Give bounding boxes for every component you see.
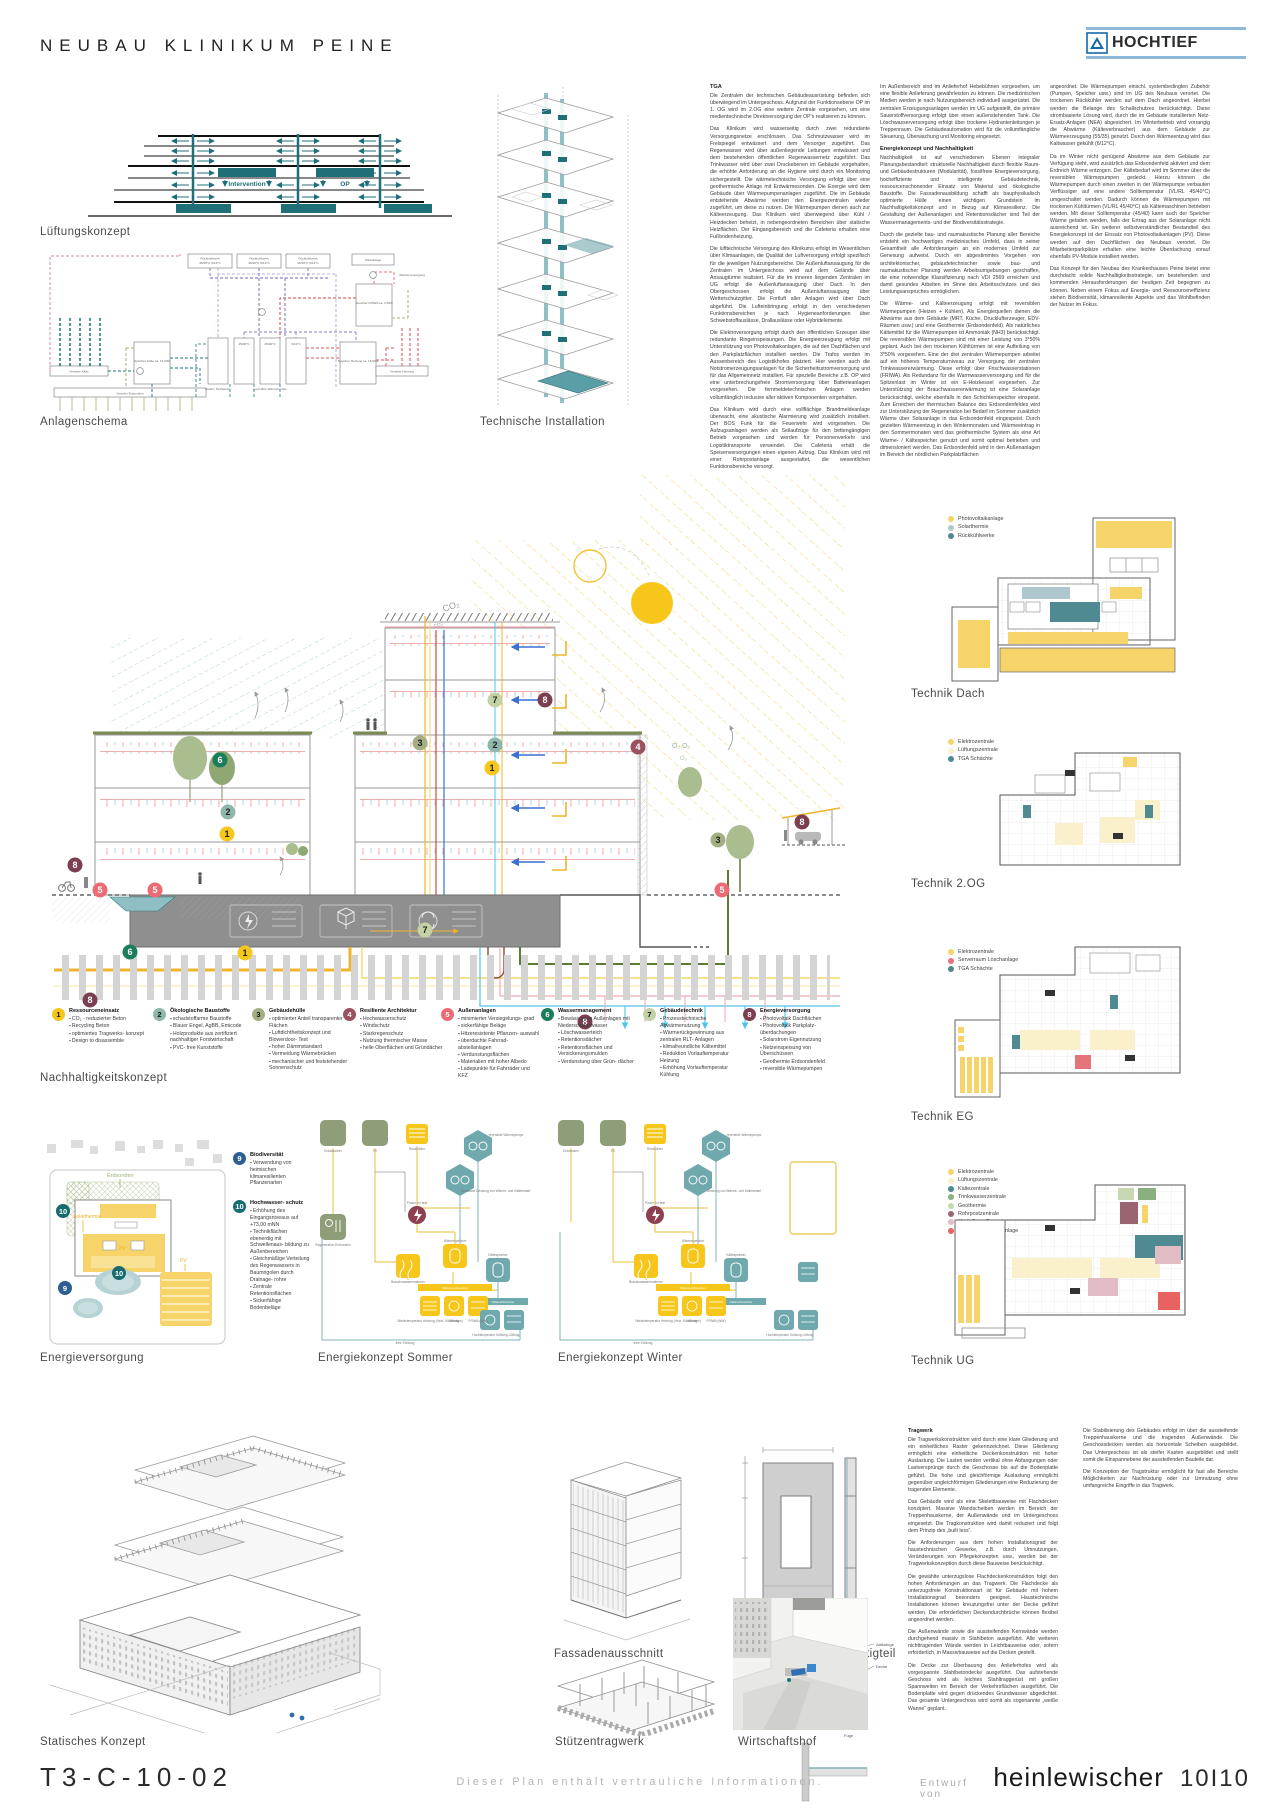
speicher-heizung-label: Speicher Heizung ca. 15.000l [338, 359, 379, 363]
svg-text:Brauchwassererwärmer: Brauchwassererwärmer [391, 1280, 426, 1284]
stuetzen-axon [540, 1658, 720, 1736]
cold-storage-icon [486, 1258, 510, 1282]
plant-schematic-diagram: Rückkühlwerk 45/40°C 6/12°C Rückkühlwerk… [40, 248, 432, 414]
svg-text:10: 10 [115, 1269, 123, 1278]
svg-text:Rückkühler: Rückkühler [647, 1147, 664, 1151]
friwa-label: Speicher FRIWA ca. 2.500l [355, 301, 392, 305]
svg-text:Lüftung: Lüftung [449, 1319, 460, 1323]
technik-2og-plan [995, 745, 1185, 871]
tragwerk-heading: Tragwerk [908, 1428, 1058, 1436]
svg-text:7: 7 [422, 925, 427, 935]
svg-text:Lüftung: Lüftung [687, 1319, 698, 1323]
svg-text:O₂: O₂ [680, 756, 688, 762]
plan-number: T3-C-10-02 [40, 1762, 233, 1793]
rooftop-pv-icon [385, 613, 553, 621]
heizkessel-label: Elektro Heizkessel [205, 387, 231, 391]
caption-energiekonzept-sommer: Energiekonzept Sommer [318, 1352, 453, 1364]
rueckkuehlwerk-label: Rückkühlwerk [200, 257, 220, 261]
svg-text:3: 3 [715, 835, 720, 845]
svg-text:Rückkühler: Rückkühler [409, 1147, 426, 1151]
ventilation-concept-diagram: Intervention OP [88, 128, 452, 224]
svg-text:10: 10 [59, 1207, 67, 1216]
text-column-energiekonzept: Im Außenbereich sind im Anlieferhof Hebe… [880, 84, 1040, 480]
svg-text:4: 4 [635, 742, 640, 752]
svg-text:3: 3 [417, 738, 422, 748]
hochtief-logo: HOCHTIEF [1086, 27, 1246, 59]
credit-prefix: Entwurf von [920, 1778, 983, 1800]
caption-stuetzentragwerk: Stützentragwerk [555, 1736, 644, 1748]
verteiler-erdsonden-label: Verteiler Erdsonden [116, 392, 143, 396]
svg-text:8: 8 [87, 995, 92, 1005]
caption-lueftungskonzept: Lüftungskonzept [40, 226, 130, 238]
svg-text:Brauchwassererwärmer: Brauchwassererwärmer [629, 1280, 664, 1284]
statik-exploded-axon [40, 1415, 400, 1733]
sun-icon [631, 582, 673, 624]
verteiler-kaelte-label: Verteiler Kälte [69, 370, 89, 374]
svg-text:5: 5 [97, 885, 102, 895]
speicher-kaelte-label: Speicher Kälte ca. 15.000l [134, 359, 170, 363]
svg-text:Wärmeverbraucher: Wärmeverbraucher [680, 1286, 706, 1290]
svg-text:8: 8 [542, 695, 547, 705]
caption-technik-ug: Technik UG [911, 1355, 974, 1367]
svg-text:Erdsonden: Erdsonden [563, 1149, 579, 1153]
svg-text:Regeneration Erdsonden: Regeneration Erdsonden [315, 1243, 351, 1247]
technik-eg-plan [950, 935, 1185, 1107]
ev-charger-icon [84, 877, 88, 888]
regeneration-icon [320, 1214, 346, 1240]
svg-text:2: 2 [492, 740, 497, 750]
svg-text:Wärmespeicher: Wärmespeicher [682, 1239, 705, 1243]
hochtief-logo-text: HOCHTIEF [1112, 34, 1198, 52]
svg-text:6: 6 [127, 947, 132, 957]
solaranlage-label: Solaranlage [365, 258, 382, 262]
caption-anlagenschema: Anlagenschema [40, 416, 128, 428]
pv-field [160, 1272, 212, 1326]
svg-text:Wärmespeicher: Wärmespeicher [444, 1239, 467, 1243]
energy-supply-site-plan: Erdsonden Solarthermie PV PV [45, 1138, 235, 1350]
caption-energiekonzept-winter: Energiekonzept Winter [558, 1352, 683, 1364]
svg-text:45/40°C 6/12°C: 45/40°C 6/12°C [248, 261, 270, 265]
svg-text:Kältespeicher: Kältespeicher [726, 1253, 746, 1257]
svg-text:Wärmeverbraucher: Wärmeverbraucher [442, 1286, 468, 1290]
svg-text:Decke: Decke [876, 1664, 888, 1669]
svg-text:PV: PV [373, 1149, 378, 1153]
legend-item-1: 1 RessourceneinsatzCO₂ - reduzierter Bet… [52, 1008, 152, 1045]
svg-text:Hochtemperatur Kühlung: Hochtemperatur Kühlung [766, 1333, 802, 1337]
svg-text:Lüftung: Lüftung [803, 1333, 814, 1337]
svg-text:Power to Heat: Power to Heat [407, 1201, 427, 1205]
legend-item-8: 8 EnergieversorgungPhotovoltaik Dachfläc… [743, 1008, 843, 1073]
text-column-tga: TGA Die Zentralen der technischen Gebäud… [710, 84, 870, 480]
solarthermie-label: Solarthermie [73, 1214, 102, 1220]
technical-installation-axon [468, 85, 643, 415]
svg-text:Hochtemperatur Kühlung: Hochtemperatur Kühlung [472, 1333, 508, 1337]
svg-text:Attikafuge: Attikafuge [876, 1642, 895, 1647]
svg-text:45/40°C 6/12°C: 45/40°C 6/12°C [199, 261, 221, 265]
hochtief-triangle-icon [1086, 32, 1108, 54]
plan-board: NEUBAU KLINIKUM PEINE HOCHTIEF [0, 0, 1280, 1810]
svg-text:FRIWA (WW): FRIWA (WW) [469, 1319, 488, 1323]
legend-item-7: 7 GebäudetechnikProzesstechnische Abwärm… [643, 1008, 743, 1079]
svg-text:7: 7 [492, 695, 497, 705]
caption-technik-2og: Technik 2.OG [911, 878, 985, 890]
caption-wirtschaftshof: Wirtschaftshof [738, 1736, 816, 1748]
wirtschaftshof-render [733, 1598, 868, 1730]
text-column-tragwerk-2: Die Stabilisierung des Gebäudes erfolgt … [1083, 1428, 1238, 1628]
truck-icon-2 [807, 1664, 816, 1672]
fassade-axon [556, 1442, 696, 1642]
credit-line: Entwurf von heinlewischer 10I10 [920, 1762, 1250, 1800]
svg-text:Erdabsorber: Erdabsorber [324, 1149, 342, 1153]
svg-text:freie Kühlung: freie Kühlung [396, 1341, 415, 1345]
svg-text:Fuge: Fuge [844, 1733, 854, 1738]
svg-text:freie Kühlung: freie Kühlung [634, 1341, 653, 1345]
svg-text:9: 9 [63, 1284, 67, 1293]
svg-text:1: 1 [489, 763, 494, 773]
o2-label: O₂ O₂ [672, 743, 691, 750]
confidential-note: Dieser Plan enthält vertrauliche Informa… [430, 1776, 850, 1788]
technik-ug-plan [950, 1180, 1190, 1348]
wasserversorgung-label: Wasserversorgung [399, 273, 425, 277]
caption-statisches-konzept: Statisches Konzept [40, 1736, 146, 1748]
page-index: 10I10 [1180, 1765, 1250, 1793]
bicycle-icon [59, 882, 75, 891]
tga-heading: TGA [710, 84, 870, 92]
technik-dach-plan [950, 512, 1185, 684]
svg-text:45/40°C: 45/40°C [238, 342, 250, 346]
legend-item-4: 4 Resiliente ArchitekturHochwasserschutz… [343, 1008, 443, 1052]
svg-text:8: 8 [799, 817, 804, 827]
legend-item-3: 3 Gebäudehülleoptimierter Anteil transpa… [252, 1008, 352, 1073]
og2-legend: Elektrozentrale Lüftungszentrale TGA Sch… [948, 738, 998, 763]
legend-item-5: 5 Außenanlagenminimierter Versiegelungs-… [441, 1008, 541, 1080]
svg-text:45/40°C: 45/40°C [264, 342, 276, 346]
legend-item-6: 6 WassermanagementBewässerung Außenlagen… [541, 1008, 641, 1066]
svg-text:simultane Deckung von Wärme- u: simultane Deckung von Wärme- und Kältebe… [462, 1189, 531, 1193]
svg-text:Rückkühlwerk: Rückkühlwerk [298, 257, 318, 261]
svg-text:45/40°C 6/12°C: 45/40°C 6/12°C [297, 261, 319, 265]
caption-nachhaltigkeitskonzept: Nachhaltigkeitskonzept [40, 1072, 167, 1084]
text-column-energiekonzept-2: angeordnet. Die Wärmepumpen einschl. sys… [1050, 84, 1210, 384]
svg-text:5: 5 [719, 885, 724, 895]
svg-text:Kälteverbraucher: Kälteverbraucher [492, 1300, 515, 1304]
author-name: heinlewischer [993, 1762, 1164, 1793]
svg-text:1: 1 [242, 948, 247, 958]
svg-text:Lüftung: Lüftung [509, 1333, 520, 1337]
svg-text:FRIWA (WW): FRIWA (WW) [707, 1319, 726, 1323]
page-title: NEUBAU KLINIKUM PEINE [40, 36, 399, 56]
legend-item-2: 2 Ökologische Baustoffeschadstoffarme Ba… [153, 1008, 253, 1052]
caption-technik-dach: Technik Dach [911, 688, 985, 700]
heat-storage-icon [443, 1244, 467, 1268]
energy-concept-winter-diagram: Erdsonden PV Rückkühler reversible Wärme… [548, 1112, 838, 1350]
caption-technische-installation: Technische Installation [480, 416, 605, 428]
legend-item-10: 10 Hochwasser- schutzErhöhung des Eingan… [233, 1200, 311, 1312]
svg-text:PV: PV [611, 1149, 616, 1153]
svg-text:reversible Wärmepumpe: reversible Wärmepumpe [489, 1133, 524, 1137]
svg-text:Kälteverbraucher: Kälteverbraucher [730, 1300, 753, 1304]
svg-text:6/12°C: 6/12°C [291, 342, 301, 346]
waermepumpe-label: reversible Wärmepumpe [253, 387, 287, 391]
co2-label: CO₂ [441, 598, 461, 613]
op-label: OP [340, 181, 350, 188]
svg-text:1: 1 [224, 829, 229, 839]
caption-technik-eg: Technik EG [911, 1111, 974, 1123]
svg-text:reversible Wärmepumpe: reversible Wärmepumpe [727, 1133, 762, 1137]
intervention-label: Intervention [228, 181, 265, 188]
building-footprint [75, 1200, 171, 1276]
svg-text:Kältespeicher: Kältespeicher [488, 1253, 508, 1257]
text-column-tragwerk-1: Tragwerk Die Tragwerkskonstruktion wird … [908, 1428, 1058, 1800]
energiekonzept-heading: Energiekonzept und Nachhaltigkeit [880, 146, 1040, 154]
sustainability-section-diagram: CO₂ co₂ [40, 450, 850, 1035]
erdsonden-label: Erdsonden [107, 1173, 134, 1179]
legend-item-9: 9 BiodiversitätVerwendung von heimischen… [233, 1152, 311, 1188]
svg-text:Rückkühlwerk: Rückkühlwerk [249, 257, 269, 261]
svg-text:6: 6 [217, 755, 222, 765]
svg-text:5: 5 [152, 885, 157, 895]
svg-text:PV: PV [119, 1246, 126, 1252]
erdsonden-piles [60, 955, 830, 1000]
svg-text:8: 8 [72, 860, 77, 870]
verteiler-heizung-label: Verteiler Heizung [390, 370, 414, 374]
svg-text:PV: PV [180, 1258, 187, 1264]
svg-text:2: 2 [225, 807, 230, 817]
caption-energieversorgung: Energieversorgung [40, 1352, 144, 1364]
svg-text:Deckung von Wärme- und Kältebe: Deckung von Wärme- und Kältebedarf [707, 1189, 761, 1193]
svg-text:Power to Heat: Power to Heat [645, 1201, 665, 1205]
energy-concept-summer-diagram: Erdabsorber PV Rückkühler reversible Wär… [310, 1112, 532, 1350]
